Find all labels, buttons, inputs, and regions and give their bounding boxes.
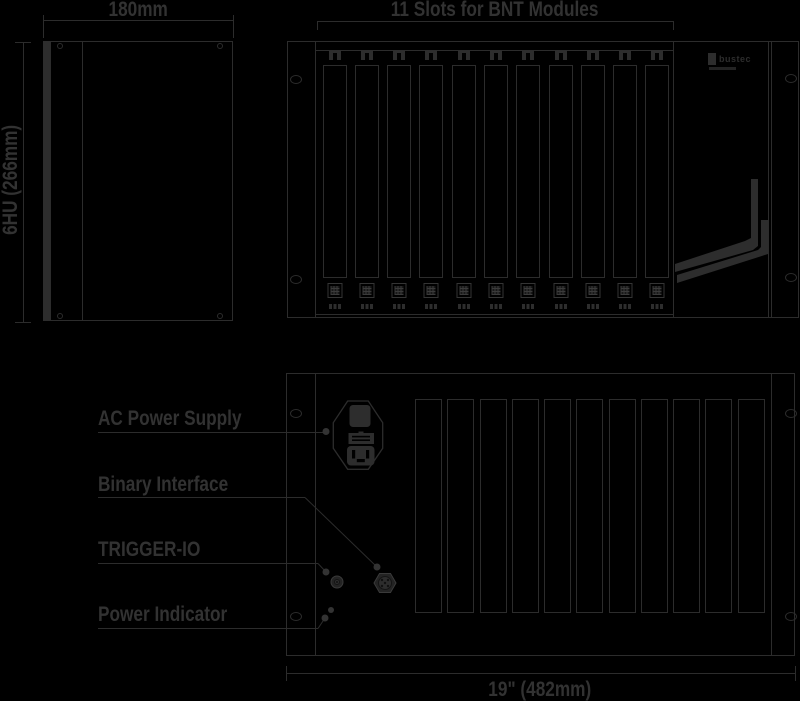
card-guide-clip-icon [587,50,599,60]
backplane-connector-icon [360,283,375,298]
backplane-connector-icon [521,283,536,298]
front-slot [613,50,637,314]
card-guide-clip-icon [490,50,502,60]
front-slot [516,50,540,314]
front-slots-bracket [317,21,673,22]
mounting-hole-icon [785,74,797,83]
rear-width-dim-tick-left [286,666,287,681]
screw-icon [57,43,63,49]
screw-icon [217,43,223,49]
slot-tab-icon [587,304,599,309]
side-width-dimension-text: 180mm [108,0,167,20]
backplane-connector-icon [328,283,343,298]
slot-tab-icon [522,304,534,309]
rear-width-dim-tick-right [795,666,796,681]
side-width-dim-tick-left [43,15,44,38]
slot-opening [452,65,476,278]
side-height-dimension-text: 6HU (266mm) [0,125,22,235]
screw-icon [217,313,223,319]
backplane-connector-icon [489,283,504,298]
slot-opening [581,65,605,278]
side-height-dim-line [23,42,24,322]
front-bracket-tick-right [673,21,674,30]
slot-opening [387,65,411,278]
bustec-logo-tagline-bar [709,67,736,70]
front-slot [355,50,379,314]
front-left-ear-divider [315,41,316,318]
card-guide-clip-icon [393,50,405,60]
front-title: 11 Slots for BNT Modules [345,0,645,20]
bustec-logo-icon [708,53,716,65]
slot-opening [484,65,508,278]
technical-drawing: 180mm 6HU (266mm) 11 Slots for BNT Modul… [0,0,800,701]
slot-tab-icon [619,304,631,309]
slot-tab-icon [490,304,502,309]
side-height-dim-tick-bottom [15,322,31,323]
slot-tab-icon [651,304,663,309]
side-height-dim-tick-top [15,42,31,43]
rear-width-dim-line [286,673,795,674]
backplane-connector-icon [392,283,407,298]
slot-tab-icon [458,304,470,309]
fuse-holder-icon [349,432,375,445]
ac-power-inlet-icon [333,401,382,469]
iec-socket-icon [347,446,375,466]
front-bracket-tick-left [317,21,318,30]
slot-tab-icon [555,304,567,309]
slot-tab-icon [329,304,341,309]
front-slot [549,50,573,314]
slot-tab-icon [361,304,373,309]
side-inner-divider [82,41,83,321]
card-guide-clip-icon [522,50,534,60]
rear-width-dimension: 19" (482mm) [440,680,640,700]
binary-interface-connector-icon [374,574,396,593]
card-guide-clip-icon [425,50,437,60]
card-guide-clip-icon [651,50,663,60]
front-slot [581,50,605,314]
front-slot [419,50,443,314]
rear-decor [90,370,800,671]
slot-opening [355,65,379,278]
slot-opening [419,65,443,278]
mounting-hole-icon [785,273,797,282]
backplane-connector-icon [457,283,472,298]
front-slot [387,50,411,314]
bustec-logo-text: bustec [719,54,751,64]
card-guide-clip-icon [555,50,567,60]
trigger-io-connector-icon [331,576,343,588]
mounting-hole-icon [290,275,302,284]
power-led-icon [328,607,334,613]
slot-opening [613,65,637,278]
screw-icon [57,313,63,319]
mounting-hole-icon [290,75,302,84]
front-title-text: 11 Slots for BNT Modules [391,0,599,20]
front-slot [323,50,347,314]
side-width-dimension: 180mm [78,0,198,20]
backplane-connector-icon [424,283,439,298]
side-height-dimension: 6HU (266mm) [0,110,22,250]
slot-opening [549,65,573,278]
slot-tab-icon [393,304,405,309]
slot-opening [323,65,347,278]
side-width-dim-tick-right [233,15,234,38]
side-body-outline [50,41,233,321]
rocker-switch-icon [350,405,371,427]
front-slot [452,50,476,314]
side-front-panel-bar [43,41,50,321]
leader-lines [98,433,377,629]
ejector-handle-icon [655,170,785,290]
backplane-connector-icon [618,283,633,298]
backplane-connector-icon [586,283,601,298]
card-guide-clip-icon [619,50,631,60]
card-guide-clip-icon [329,50,341,60]
backplane-connector-icon [554,283,569,298]
front-cage-bottom-rail [316,314,673,315]
side-width-dim-line [43,20,233,21]
rear-width-dimension-text: 19" (482mm) [489,680,592,700]
slot-tab-icon [425,304,437,309]
card-guide-clip-icon [458,50,470,60]
front-slot [484,50,508,314]
slot-opening [516,65,540,278]
card-guide-clip-icon [361,50,373,60]
